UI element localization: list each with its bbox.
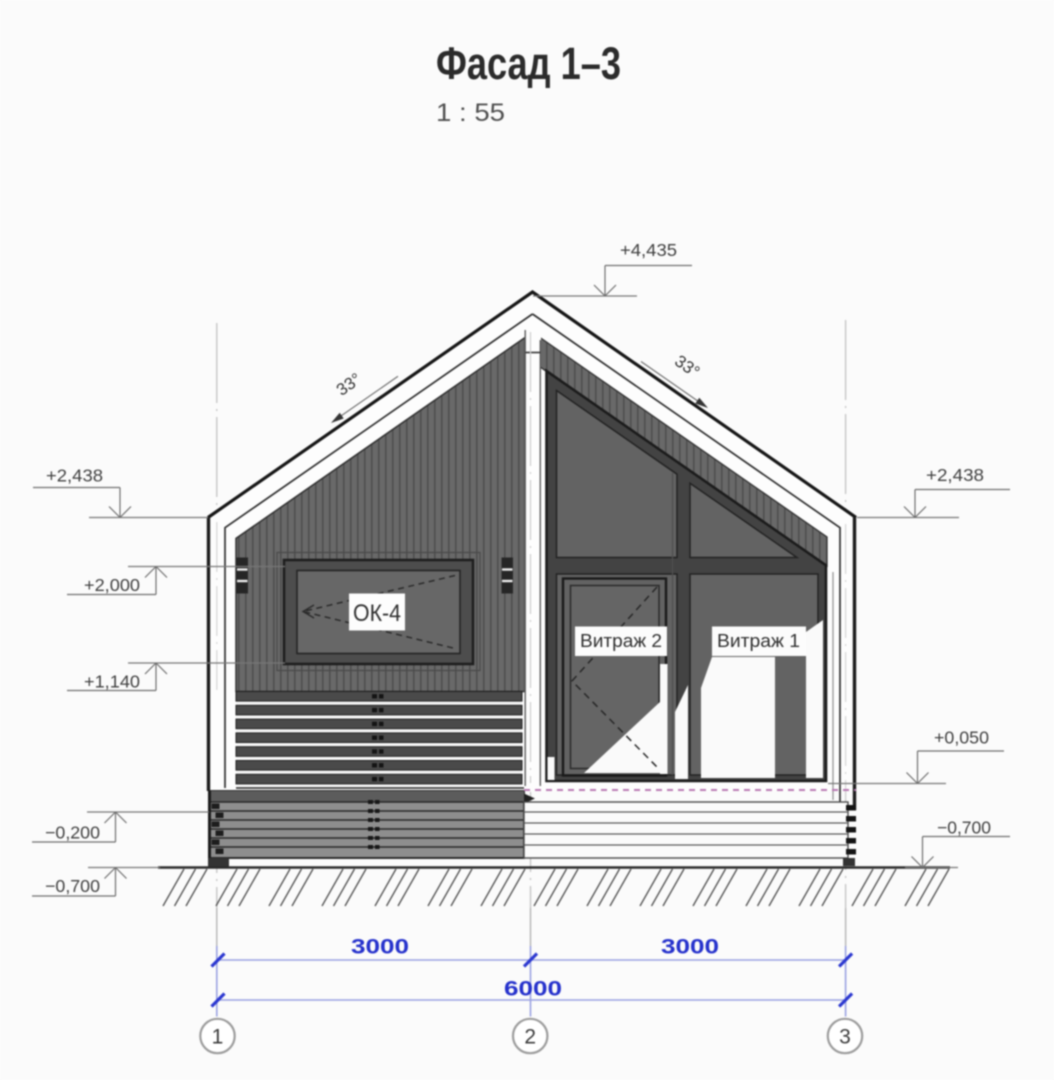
svg-text:3: 3 [839,1026,851,1049]
svg-text:+4,435: +4,435 [620,240,677,260]
svg-text:+2,000: +2,000 [84,575,140,595]
svg-text:ОК-4: ОК-4 [353,600,401,627]
svg-text:2: 2 [524,1026,536,1049]
svg-text:−0,700: −0,700 [45,876,100,896]
svg-text:+1,140: +1,140 [84,672,140,692]
svg-text:−0,200: −0,200 [45,823,100,843]
svg-text:−0,700: −0,700 [937,818,991,838]
svg-text:+0,050: +0,050 [934,728,989,748]
svg-text:Витраж 1: Витраж 1 [717,631,800,651]
svg-text:1: 1 [212,1026,224,1049]
svg-text:3000: 3000 [351,935,409,959]
svg-text:3000: 3000 [661,935,719,959]
svg-text:Фасад 1–3: Фасад 1–3 [436,38,621,89]
svg-text:1 : 55: 1 : 55 [436,99,505,127]
svg-text:+2,438: +2,438 [926,465,984,485]
svg-text:+2,438: +2,438 [46,466,103,486]
svg-text:Витраж 2: Витраж 2 [580,631,662,651]
svg-text:6000: 6000 [504,977,562,1001]
